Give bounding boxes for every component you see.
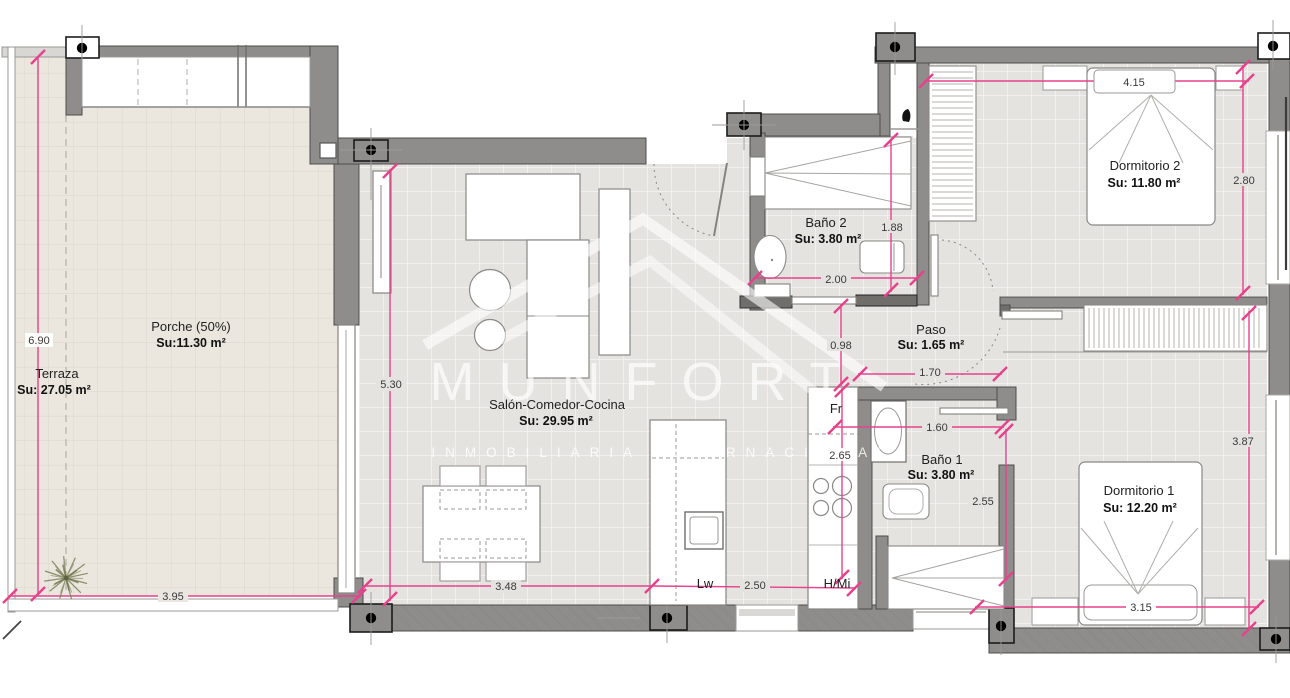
svg-text:Su: 29.95 m²: Su: 29.95 m² xyxy=(519,414,593,428)
svg-text:Paso: Paso xyxy=(916,322,946,337)
svg-text:Porche (50%): Porche (50%) xyxy=(151,319,230,334)
svg-text:1.88: 1.88 xyxy=(881,222,902,234)
svg-text:3.95: 3.95 xyxy=(162,591,183,603)
svg-text:Su: 11.80 m²: Su: 11.80 m² xyxy=(1108,176,1181,190)
svg-text:2.50: 2.50 xyxy=(744,580,765,592)
svg-text:Baño 2: Baño 2 xyxy=(805,215,846,230)
svg-text:2.00: 2.00 xyxy=(825,274,846,286)
svg-text:Terraza: Terraza xyxy=(35,366,79,381)
svg-text:3.87: 3.87 xyxy=(1232,436,1253,448)
svg-text:3.15: 3.15 xyxy=(1130,602,1151,614)
svg-text:1.60: 1.60 xyxy=(926,422,947,434)
svg-text:Dormitorio 2: Dormitorio 2 xyxy=(1110,158,1181,173)
svg-text:Su: 12.20 m²: Su: 12.20 m² xyxy=(1103,501,1177,515)
svg-text:5.30: 5.30 xyxy=(380,379,401,391)
svg-text:INMOBILIARIA INTERNACIONAL: INMOBILIARIA INTERNACIONAL xyxy=(431,445,894,460)
svg-text:2.65: 2.65 xyxy=(829,450,850,462)
svg-text:Lw: Lw xyxy=(697,576,714,591)
svg-text:3.48: 3.48 xyxy=(495,581,516,593)
svg-text:Dormitorio 1: Dormitorio 1 xyxy=(1104,483,1175,498)
svg-text:4.15: 4.15 xyxy=(1123,77,1144,89)
svg-text:Fr: Fr xyxy=(830,401,843,416)
svg-text:H/Mi: H/Mi xyxy=(824,576,851,591)
svg-text:Su: 3.80 m²: Su: 3.80 m² xyxy=(908,468,975,482)
svg-text:2.55: 2.55 xyxy=(972,496,993,508)
svg-text:0.98: 0.98 xyxy=(830,340,851,352)
svg-text:Su:11.30 m²: Su:11.30 m² xyxy=(156,336,225,350)
svg-text:Su: 3.80 m²: Su: 3.80 m² xyxy=(795,232,862,246)
svg-text:1.70: 1.70 xyxy=(919,367,940,379)
svg-text:Salón-Comedor-Cocina: Salón-Comedor-Cocina xyxy=(489,397,626,412)
svg-text:Baño 1: Baño 1 xyxy=(921,452,962,467)
svg-text:Su: 1.65 m²: Su: 1.65 m² xyxy=(898,338,965,352)
svg-text:6.90: 6.90 xyxy=(28,335,49,347)
svg-text:2.80: 2.80 xyxy=(1233,175,1254,187)
svg-text:Su: 27.05 m²: Su: 27.05 m² xyxy=(17,383,91,397)
